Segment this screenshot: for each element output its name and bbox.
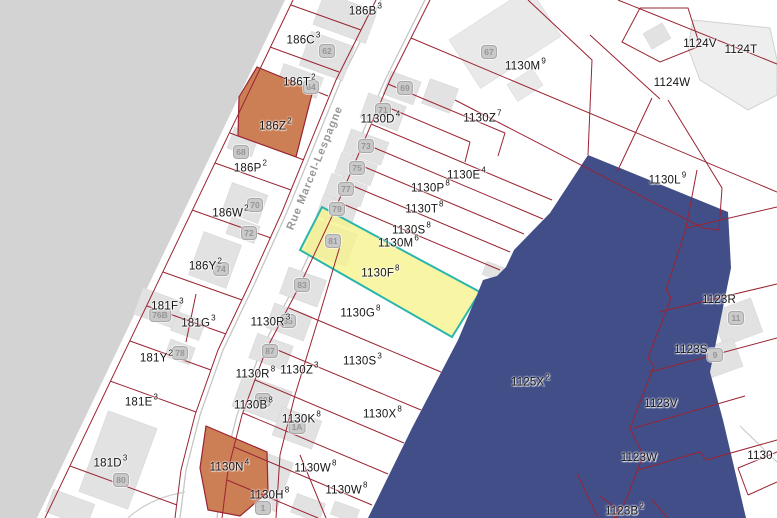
parcel-label-181D[interactable]: 181D3 (94, 455, 127, 470)
parcel-label-1130G[interactable]: 1130G8 (340, 305, 379, 320)
parcel-label-1125X[interactable]: 1125X2 (511, 374, 549, 389)
parcel-label-1130F[interactable]: 1130F8 (361, 265, 398, 280)
address-badge-69: 69 (397, 81, 413, 95)
address-badge-72: 72 (241, 226, 257, 240)
parcel-label-181G[interactable]: 181G3 (181, 315, 215, 330)
parcel-label-1124T[interactable]: 1124T (725, 44, 758, 56)
address-badge-62: 62 (319, 44, 335, 58)
parcel-label-1130P[interactable]: 1130P8 (411, 180, 449, 195)
address-badge-81: 81 (325, 234, 341, 248)
parcel-label-1130W[interactable]: 1130W8 (294, 460, 335, 475)
parcel-label-186Y[interactable]: 186Y2 (189, 258, 221, 273)
parcel-label-181E[interactable]: 181E3 (125, 394, 157, 409)
address-badge-67: 67 (481, 45, 497, 59)
address-badge-68: 68 (233, 145, 249, 159)
parcel-label-1130S[interactable]: 1130S3 (343, 353, 381, 368)
parcel-label-1123S[interactable]: 1123S (674, 344, 707, 356)
parcel-label-1123W[interactable]: 1123W (621, 452, 658, 464)
parcel-label-1130Z[interactable]: 1130Z7 (463, 110, 500, 125)
parcel-label-1130N[interactable]: 1130N4 (210, 459, 249, 474)
parcel-label-1130E[interactable]: 1130E4 (447, 167, 485, 182)
parcel-label-186B[interactable]: 186B3 (349, 3, 381, 18)
address-badge-78: 78 (172, 346, 188, 360)
cadastral-map-canvas[interactable]: Rue Marcel-Lespagne 186B3186C3186T2186Z2… (0, 0, 777, 518)
parcel-label-1130[interactable]: 1130 (747, 450, 773, 462)
parcel-label-1130M[interactable]: 1130M6 (378, 235, 418, 250)
parcel-label-181Y[interactable]: 181Y2 (140, 350, 172, 365)
parcel-label-1130T[interactable]: 1130T8 (405, 201, 442, 216)
parcel-label-186T[interactable]: 186T2 (283, 74, 315, 89)
address-badge-80: 80 (113, 473, 129, 487)
parcel-label-186Z[interactable]: 186Z2 (259, 118, 291, 133)
parcel-label-1130X[interactable]: 1130X8 (363, 406, 401, 421)
parcel-label-1123B[interactable]: 1123B2 (605, 503, 643, 518)
parcel-label-181F[interactable]: 181F3 (151, 298, 183, 313)
parcel-label-1124V[interactable]: 1124V (683, 38, 716, 50)
address-badge-9: 9 (707, 348, 723, 362)
address-badge-73: 73 (358, 139, 374, 153)
parcel-label-1130R[interactable]: 1130R8 (236, 366, 275, 381)
address-badge-11: 11 (728, 311, 744, 325)
parcel-label-186W[interactable]: 186W2 (212, 205, 248, 220)
parcel-label-186C[interactable]: 186C3 (287, 32, 320, 47)
parcel-label-1130H[interactable]: 1130H8 (250, 487, 289, 502)
parcel-label-1124W[interactable]: 1124W (654, 77, 691, 89)
address-badge-1: 1 (255, 501, 271, 515)
address-badge-70: 70 (247, 198, 263, 212)
parcel-label-1130R[interactable]: 1130R3 (251, 314, 290, 329)
parcel-label-1130W[interactable]: 1130W8 (325, 482, 366, 497)
parcel-label-1130K[interactable]: 1130K8 (282, 411, 320, 426)
parcel-label-1130M[interactable]: 1130M9 (505, 58, 545, 73)
parcel-label-1123R[interactable]: 1123R (702, 294, 736, 306)
address-badge-79: 79 (329, 202, 345, 216)
address-badge-87: 87 (262, 344, 278, 358)
parcel-label-1130L[interactable]: 1130L9 (649, 172, 686, 187)
address-badge-75: 75 (349, 161, 365, 175)
parcel-label-1130B[interactable]: 1130B8 (234, 397, 272, 412)
parcel-label-1123V[interactable]: 1123V (644, 398, 677, 410)
parcel-label-1130D[interactable]: 1130D4 (361, 111, 400, 126)
parcel-label-186P[interactable]: 186P2 (234, 160, 266, 175)
address-badge-83: 83 (294, 278, 310, 292)
address-badge-77: 77 (338, 182, 354, 196)
parcel-label-1130Z[interactable]: 1130Z3 (280, 362, 317, 377)
